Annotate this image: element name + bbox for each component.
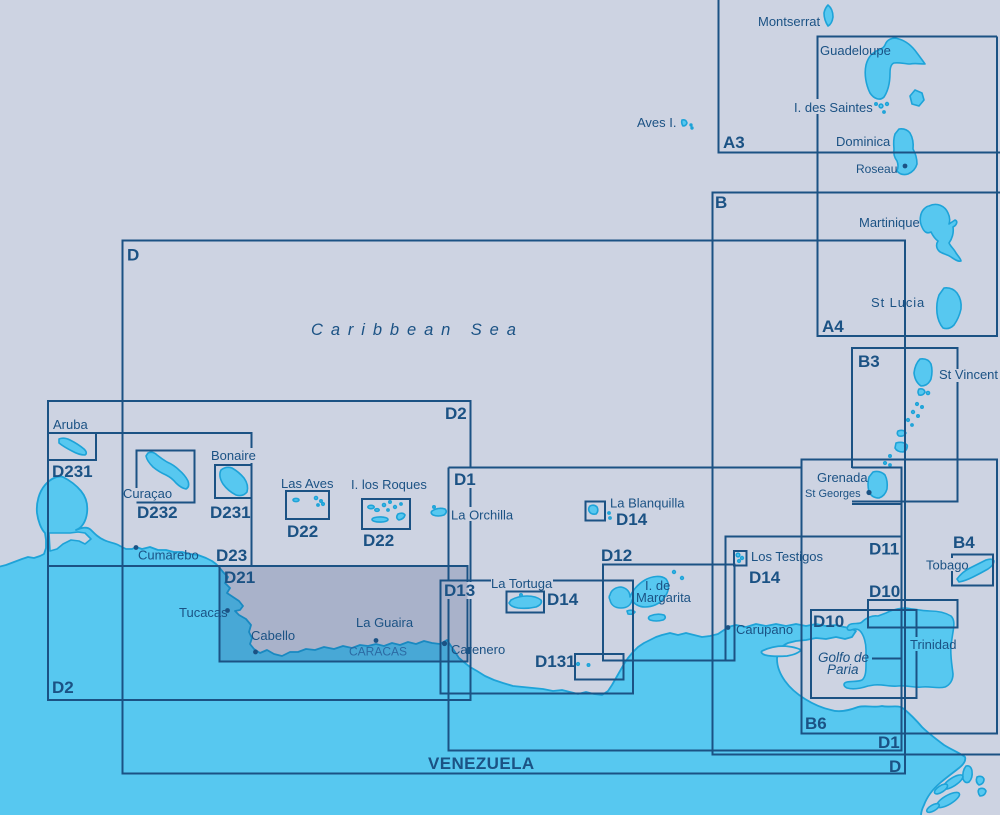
svg-text:Carenero: Carenero [451, 642, 505, 657]
svg-text:I. los Roques: I. los Roques [351, 477, 427, 492]
svg-text:Aves I.: Aves I. [637, 115, 677, 130]
svg-text:Cabello: Cabello [251, 628, 295, 643]
svg-text:D2: D2 [445, 404, 467, 423]
svg-text:Paria: Paria [827, 662, 859, 677]
svg-text:Bonaire: Bonaire [211, 448, 256, 463]
svg-text:St Vincent: St Vincent [939, 367, 998, 382]
svg-text:D12: D12 [601, 546, 632, 565]
svg-text:B3: B3 [858, 352, 880, 371]
svg-text:D: D [127, 246, 139, 265]
svg-text:St Lucia: St Lucia [871, 295, 925, 310]
svg-text:D14: D14 [616, 510, 648, 529]
svg-text:Caribbean Sea: Caribbean Sea [311, 321, 524, 339]
svg-text:Aruba: Aruba [53, 417, 88, 432]
svg-text:D14: D14 [547, 590, 579, 609]
svg-text:D22: D22 [363, 531, 394, 550]
svg-text:Martinique: Martinique [859, 215, 920, 230]
svg-text:St Georges: St Georges [805, 488, 861, 500]
svg-text:D231: D231 [52, 462, 93, 481]
svg-text:La Tortuga: La Tortuga [491, 576, 553, 591]
svg-text:A3: A3 [723, 133, 745, 152]
svg-text:D1: D1 [878, 733, 900, 752]
svg-text:B4: B4 [953, 533, 975, 552]
svg-text:CARACAS: CARACAS [349, 645, 407, 659]
svg-text:D2: D2 [52, 678, 74, 697]
svg-text:D1: D1 [454, 470, 476, 489]
svg-text:Los Testigos: Los Testigos [751, 549, 824, 564]
svg-text:La Guaira: La Guaira [356, 615, 414, 630]
svg-text:Las Aves: Las Aves [281, 476, 334, 491]
svg-text:D14: D14 [749, 568, 781, 587]
svg-text:VENEZUELA: VENEZUELA [428, 754, 535, 773]
svg-text:Guadeloupe: Guadeloupe [820, 43, 891, 58]
svg-text:Dominica: Dominica [836, 134, 891, 149]
svg-text:B6: B6 [805, 714, 827, 733]
svg-text:D23: D23 [216, 546, 247, 565]
svg-text:D10: D10 [813, 612, 844, 631]
svg-text:D10: D10 [869, 582, 900, 601]
svg-text:Trinidad: Trinidad [910, 637, 956, 652]
svg-text:La Blanquilla: La Blanquilla [610, 496, 685, 511]
svg-text:D: D [889, 757, 901, 776]
svg-text:D11: D11 [869, 540, 899, 559]
svg-text:A4: A4 [822, 317, 844, 336]
svg-text:D232: D232 [137, 503, 178, 522]
svg-text:Cumarebo: Cumarebo [138, 548, 199, 563]
svg-text:D13: D13 [444, 581, 475, 600]
svg-text:Grenada: Grenada [817, 470, 868, 485]
svg-text:Margarita: Margarita [636, 590, 692, 605]
svg-text:Curaçao: Curaçao [123, 486, 172, 501]
svg-text:La Orchilla: La Orchilla [451, 508, 514, 523]
svg-text:D231: D231 [210, 503, 251, 522]
svg-text:Carupano: Carupano [736, 622, 793, 637]
svg-text:Roseau: Roseau [856, 162, 897, 176]
svg-text:D131: D131 [535, 652, 576, 671]
svg-text:B: B [715, 193, 727, 212]
svg-text:Tobago: Tobago [926, 558, 969, 573]
svg-text:Tucacas: Tucacas [179, 605, 228, 620]
svg-text:Montserrat: Montserrat [758, 14, 821, 29]
svg-text:D22: D22 [287, 522, 318, 541]
svg-text:D21: D21 [224, 568, 255, 587]
svg-text:I. des Saintes: I. des Saintes [794, 100, 873, 115]
